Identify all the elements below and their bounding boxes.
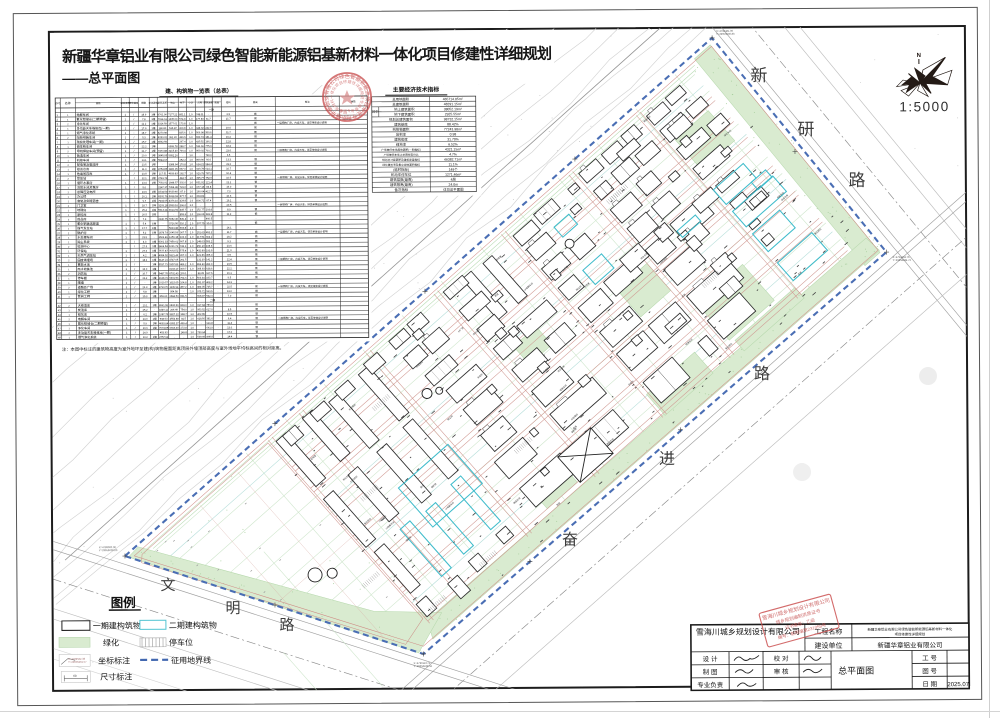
svg-text:审定专用: 审定专用 (340, 108, 355, 113)
svg-text:新疆华章铝业有限公司绿色智能新能源项目审定专用章: 新疆华章铝业有限公司绿色智能新能源项目审定专用章 (0, 0, 372, 124)
